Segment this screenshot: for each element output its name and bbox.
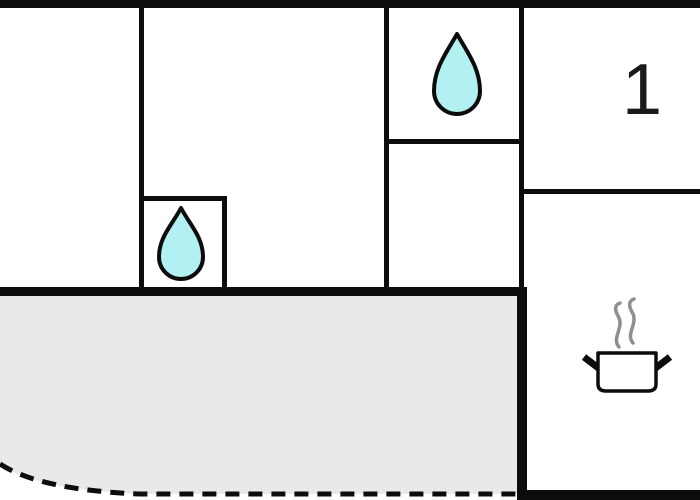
cooking-pot-steam-icon [584, 299, 670, 391]
wall-vertical-right [519, 8, 524, 289]
pot-body-icon [598, 353, 656, 391]
wall-vertical-left [139, 8, 144, 296]
wall-room1-bottom [519, 189, 700, 194]
room-number-label: 1 [600, 50, 684, 130]
floor-plan: 1 [0, 0, 700, 500]
terrace-area [0, 296, 517, 494]
water-drop-icon [434, 34, 480, 114]
wall-vertical-middle [384, 8, 389, 296]
wall-exterior-horizontal-thick [0, 287, 527, 296]
wall-bathroom-small-top [139, 196, 227, 201]
wall-exterior-vertical-thick [517, 287, 527, 500]
steam-icon [630, 299, 634, 343]
wall-kitchen-bottom [517, 490, 700, 500]
floor-plan-graphics [0, 0, 700, 500]
water-drop-icon [159, 208, 203, 279]
wall-bathroom-upper-bottom [384, 139, 524, 144]
steam-icon [616, 303, 620, 347]
wall-bathroom-small-right [222, 196, 227, 296]
wall-exterior-top [0, 0, 700, 8]
